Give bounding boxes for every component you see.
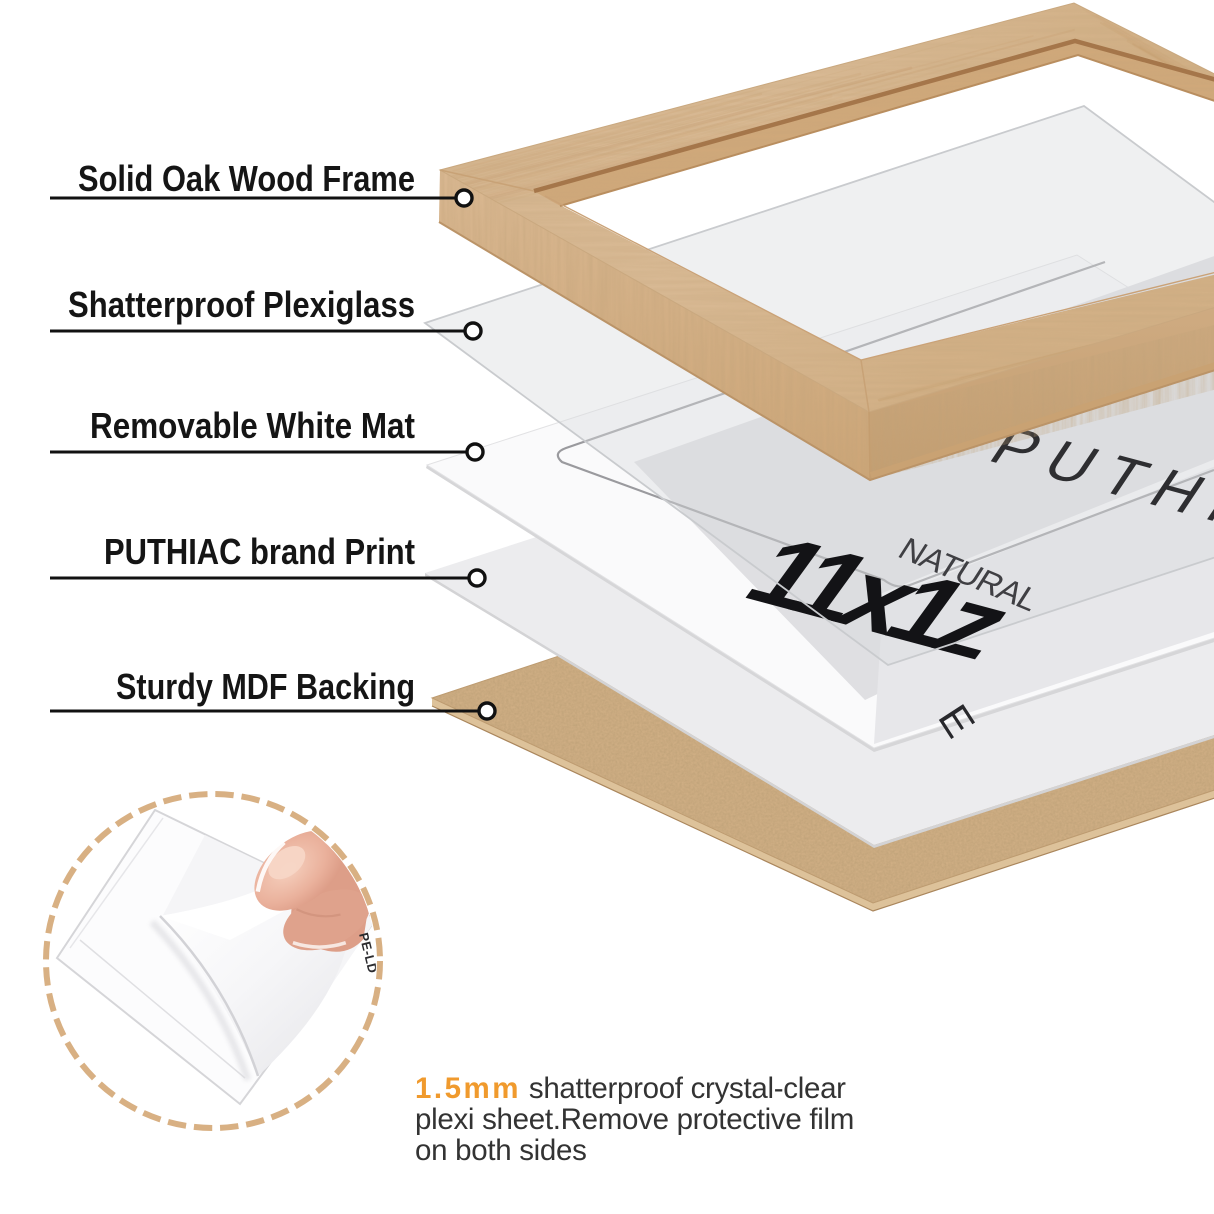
svg-text:Shatterproof Plexiglass: Shatterproof Plexiglass [68,284,415,325]
svg-text:plexi sheet.Remove protective: plexi sheet.Remove protective film [415,1103,854,1136]
svg-text:PUTHIAC brand Print: PUTHIAC brand Print [104,531,415,572]
svg-text:on both sides: on both sides [415,1134,587,1167]
svg-text:Removable White Mat: Removable White Mat [90,405,415,446]
svg-text:Solid Oak Wood Frame: Solid Oak Wood Frame [78,158,415,199]
svg-text:Sturdy MDF Backing: Sturdy MDF Backing [116,666,415,707]
svg-text:1.5mm shatterproof crystal-cle: 1.5mm shatterproof crystal-clear [415,1072,846,1105]
